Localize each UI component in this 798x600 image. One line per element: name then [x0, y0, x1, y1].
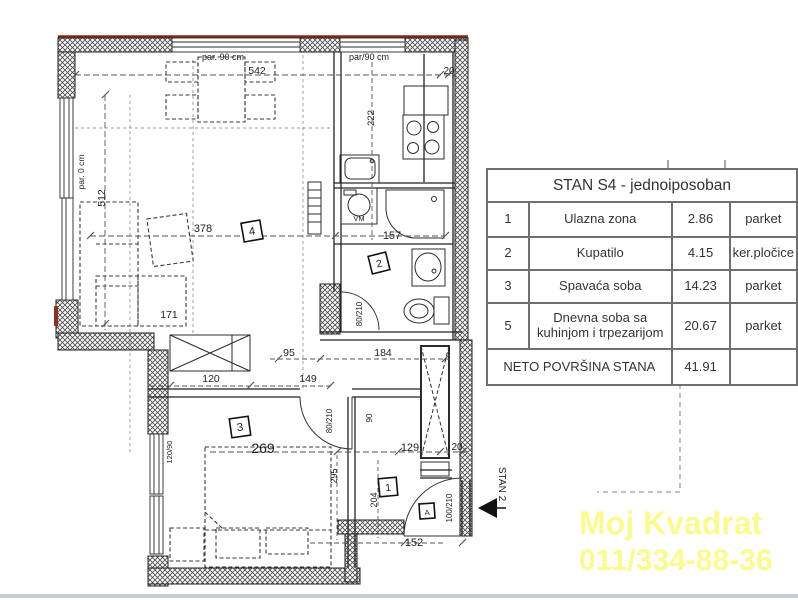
kitchen-counter [404, 86, 448, 115]
dimension-label: 120 [202, 373, 220, 385]
sofa [80, 202, 138, 326]
table-title: STAN S4 - jednoiposoban [487, 169, 797, 202]
dimension-label: 222 [366, 110, 377, 126]
watermark-phone: 011/334-88-36 [579, 542, 773, 580]
table-cell: Ulazna zona [529, 202, 672, 237]
svg-text:A: A [424, 508, 430, 517]
table-cell: 1 [487, 202, 529, 237]
dimension-label: 20 [451, 442, 463, 453]
room-marker: 3 [229, 416, 250, 437]
table-row: 5Dnevna soba sa kuhinjom i trpezarijom20… [487, 303, 797, 349]
table-cell: parket [730, 270, 797, 303]
pillow [216, 528, 260, 558]
toilet [434, 297, 449, 324]
dimension-label: 542 [248, 65, 266, 77]
furniture [80, 57, 331, 567]
table-cell: Kupatilo [529, 237, 672, 270]
washbasin [412, 249, 445, 286]
bed [205, 447, 331, 567]
dimension-label: 378 [194, 223, 212, 235]
room-marker: 2 [368, 252, 390, 274]
chair [245, 95, 275, 119]
table-cell: 2 [487, 237, 529, 270]
dining-table [198, 57, 245, 122]
table-cell: 14.23 [672, 270, 730, 303]
dimension-label: 295 [329, 468, 339, 483]
room-schedule-table: STAN S4 - jednoiposoban 1Ulazna zona2.86… [486, 168, 798, 386]
windows [60, 38, 405, 554]
svg-text:1: 1 [385, 482, 392, 494]
dimension-label: par. 90 cm [202, 52, 244, 62]
dimension-label: 80/210 [325, 408, 334, 433]
dimension-label: 95 [283, 347, 295, 359]
dimension-labels: par. 90 cm542par/90 cm20222par. 0 cm5123… [76, 52, 507, 549]
dimension-label: 129 [401, 442, 419, 454]
dimension-label: 90 [365, 413, 374, 422]
dimension-label: 184 [374, 347, 392, 359]
interior-walls [148, 52, 470, 568]
dimension-label: 157 [383, 230, 401, 242]
dimension-label: 120/90 [165, 441, 174, 464]
total-label: NETO POVRŠINA STANA [487, 349, 672, 385]
pillow [266, 528, 308, 554]
table-total-row: NETO POVRŠINA STANA 41.91 [487, 349, 797, 385]
watermark: Moj Kvadrat 011/334-88-36 [579, 504, 773, 580]
table-row: 2Kupatilo4.15ker.pločice [487, 237, 797, 270]
room-marker: A [419, 503, 435, 519]
dimension-label: STAN 2 [496, 467, 507, 502]
fixtures [170, 86, 449, 476]
watermark-brand: Moj Kvadrat [579, 504, 773, 542]
dimension-label: 512 [96, 189, 108, 207]
table-cell: 20.67 [672, 303, 730, 349]
table-cell: 2.86 [672, 202, 730, 237]
table-row: 3Spavaća soba14.23parket [487, 270, 797, 303]
table-row: 1Ulazna zona2.86parket [487, 202, 797, 237]
dimension-label: 204 [369, 492, 379, 507]
bottom-bar [0, 594, 798, 598]
dimension-label: VM [353, 214, 364, 223]
dimension-lines [72, 55, 468, 546]
coffee-table [147, 213, 193, 266]
table-cell: Spavaća soba [529, 270, 672, 303]
table-cell: 4.15 [672, 237, 730, 270]
dimension-label: 100/210 [445, 493, 454, 522]
total-floor [730, 349, 797, 385]
dimension-label: 152 [405, 537, 423, 549]
nightstand [170, 528, 204, 561]
red-accent-lines [54, 37, 468, 327]
dimension-label: par. 0 cm [76, 155, 86, 190]
table-cell: Dnevna soba sa kuhinjom i trpezarijom [529, 303, 672, 349]
table-cell: ker.pločice [730, 237, 797, 270]
floorplan-page: par. 90 cm542par/90 cm20222par. 0 cm5123… [0, 0, 798, 600]
table-cell: 3 [487, 270, 529, 303]
dimension-label: 269 [251, 440, 275, 456]
total-area: 41.91 [672, 349, 730, 385]
room-marker: 1 [378, 477, 398, 497]
room-marker: 4 [241, 220, 263, 242]
dimension-label: 80/210 [355, 301, 364, 326]
table-header-row: STAN S4 - jednoiposoban [487, 169, 797, 202]
table-cell: 5 [487, 303, 529, 349]
table-cell: parket [730, 303, 797, 349]
dimension-label: 171 [160, 309, 178, 321]
dimension-label: 20 [443, 66, 455, 77]
dimension-label: par/90 cm [349, 52, 389, 62]
dimension-label: 149 [299, 373, 317, 385]
table-cell: parket [730, 202, 797, 237]
